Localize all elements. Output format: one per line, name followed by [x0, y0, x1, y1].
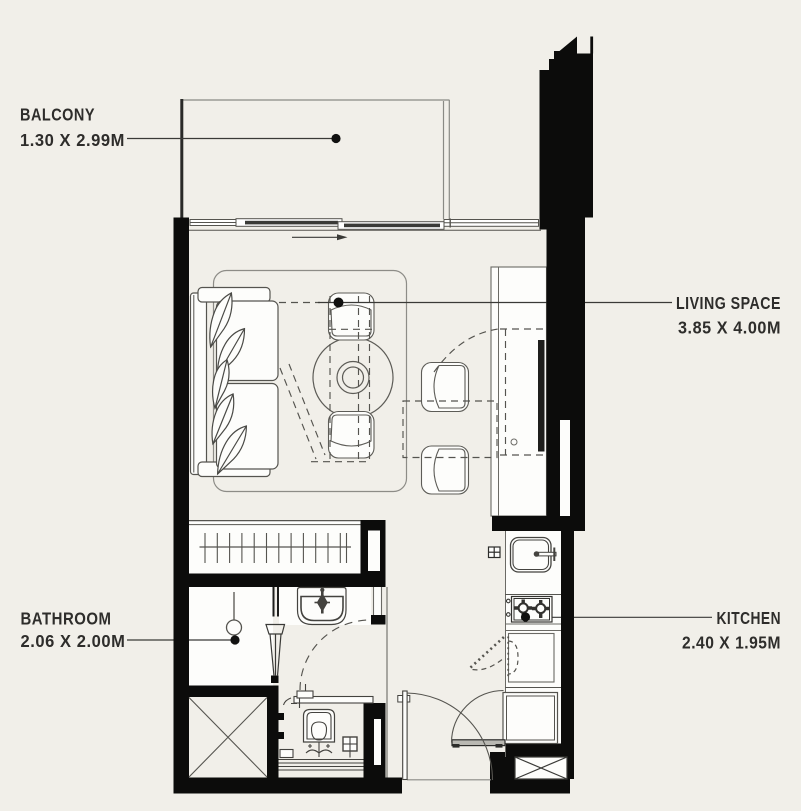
svg-text:KITCHEN: KITCHEN [717, 608, 782, 628]
svg-text:2.06 X 2.00M: 2.06 X 2.00M [21, 631, 126, 651]
svg-text:BALCONY: BALCONY [20, 105, 95, 125]
svg-text:BATHROOM: BATHROOM [21, 609, 112, 629]
svg-text:2.40 X 1.95M: 2.40 X 1.95M [682, 633, 781, 653]
svg-text:1.30 X 2.99M: 1.30 X 2.99M [20, 130, 125, 150]
svg-text:3.85 X 4.00M: 3.85 X 4.00M [678, 318, 781, 338]
svg-text:LIVING SPACE: LIVING SPACE [676, 293, 781, 313]
